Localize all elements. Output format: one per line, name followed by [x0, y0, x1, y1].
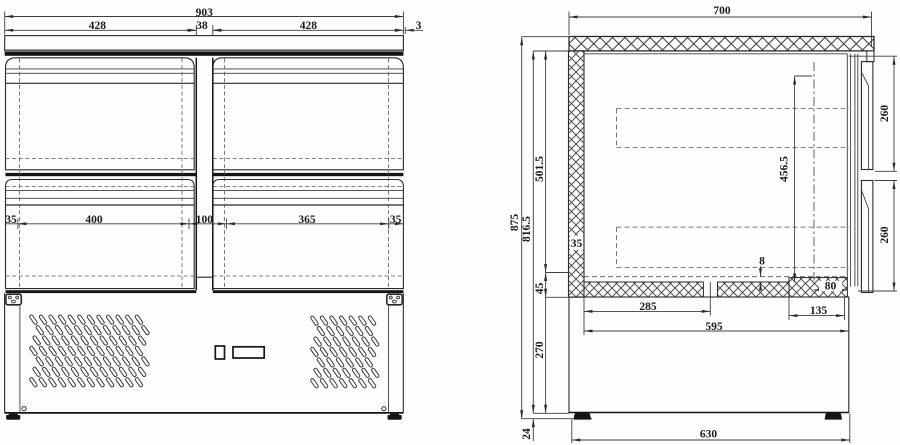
svg-text:100: 100: [196, 214, 214, 226]
svg-text:80: 80: [825, 280, 837, 292]
svg-text:38: 38: [196, 20, 208, 32]
svg-text:35: 35: [571, 238, 583, 250]
svg-text:270: 270: [534, 341, 546, 359]
svg-text:903: 903: [196, 7, 214, 19]
svg-text:260: 260: [879, 226, 891, 244]
svg-text:365: 365: [298, 214, 316, 226]
svg-text:35: 35: [390, 214, 402, 226]
svg-text:875: 875: [509, 214, 521, 232]
svg-text:630: 630: [700, 429, 718, 441]
svg-text:285: 285: [639, 301, 657, 313]
svg-text:24: 24: [521, 428, 533, 440]
svg-text:595: 595: [705, 321, 723, 333]
svg-text:35: 35: [5, 214, 17, 226]
svg-text:3: 3: [416, 20, 422, 32]
svg-text:816.5: 816.5: [521, 216, 533, 242]
svg-text:400: 400: [85, 214, 103, 226]
svg-text:428: 428: [89, 20, 107, 32]
svg-text:260: 260: [879, 105, 891, 123]
svg-text:428: 428: [300, 20, 318, 32]
svg-text:8: 8: [759, 256, 765, 268]
svg-text:700: 700: [713, 5, 731, 17]
svg-text:501.5: 501.5: [534, 156, 546, 182]
svg-text:456.5: 456.5: [779, 156, 791, 182]
svg-text:45: 45: [534, 283, 546, 295]
svg-text:135: 135: [810, 305, 828, 317]
